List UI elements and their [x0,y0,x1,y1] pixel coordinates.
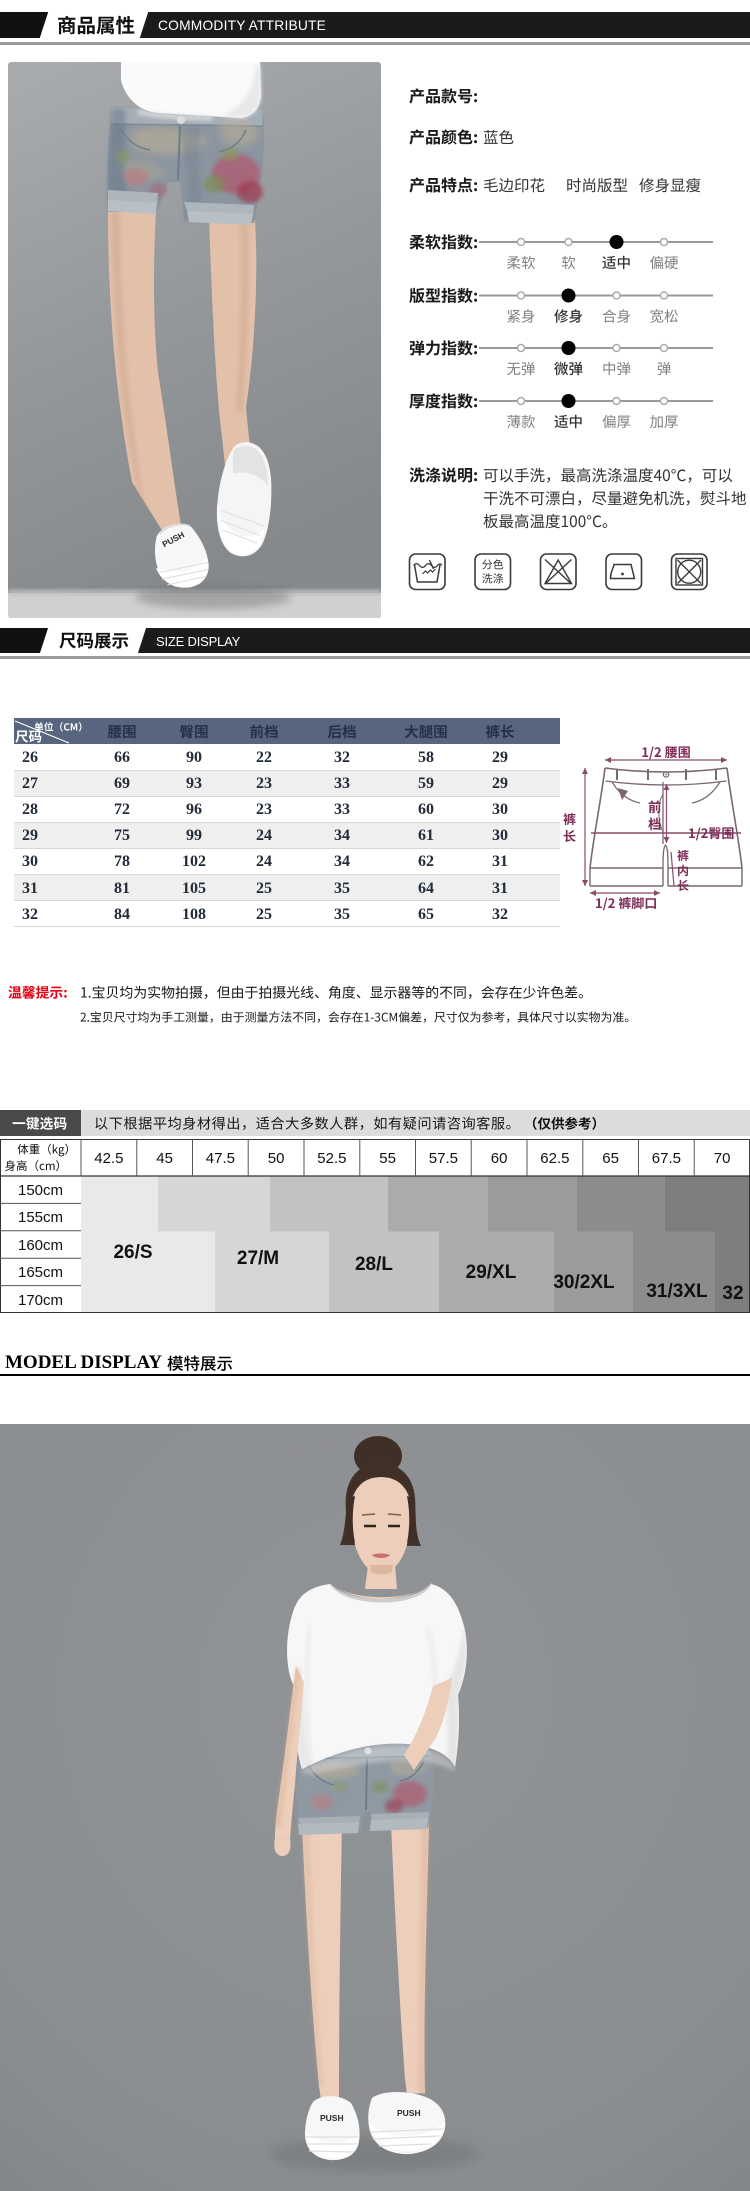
svg-text:PUSH: PUSH [397,2108,421,2118]
svg-text:PUSH: PUSH [320,2113,344,2123]
